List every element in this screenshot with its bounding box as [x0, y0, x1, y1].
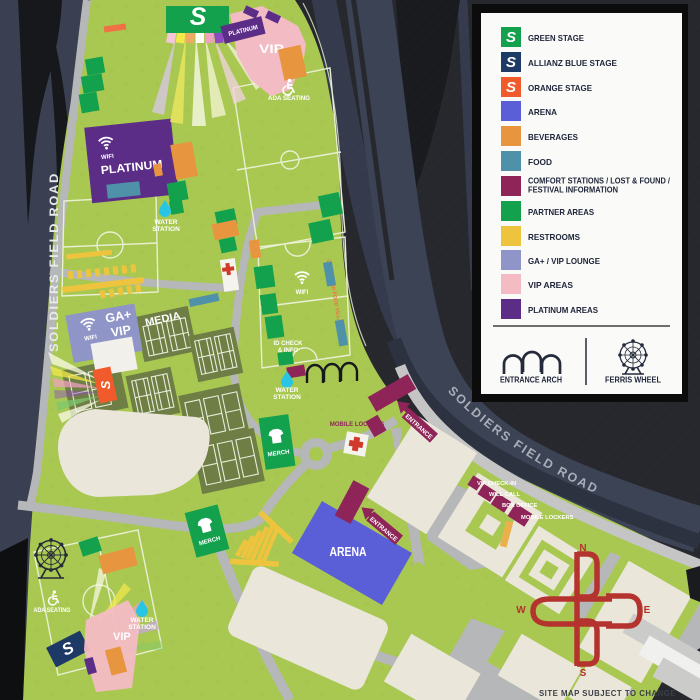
svg-text:FERRIS WHEEL: FERRIS WHEEL: [605, 375, 661, 385]
svg-text:WATER: WATER: [155, 219, 178, 226]
svg-text:WILL CALL: WILL CALL: [489, 492, 521, 498]
svg-text:ADA SEATING: ADA SEATING: [34, 607, 71, 614]
svg-text:GA+ / VIP LOUNGE: GA+ / VIP LOUNGE: [528, 256, 600, 266]
svg-text:VIP AREAS: VIP AREAS: [528, 280, 573, 290]
svg-text:W: W: [516, 605, 526, 616]
svg-text:FOOD: FOOD: [528, 157, 552, 167]
svg-text:STATION: STATION: [152, 226, 180, 233]
svg-text:E: E: [644, 605, 651, 616]
svg-text:S: S: [580, 668, 587, 679]
svg-text:MOBILE LOCKERS: MOBILE LOCKERS: [330, 422, 384, 428]
svg-text:VIP CHECK-IN: VIP CHECK-IN: [477, 481, 516, 487]
svg-text:ADA SEATING: ADA SEATING: [268, 95, 310, 102]
svg-text:GREEN STAGE: GREEN STAGE: [528, 33, 584, 43]
svg-text:STATION: STATION: [128, 624, 156, 631]
svg-text:PARTNER AREAS: PARTNER AREAS: [528, 207, 594, 217]
svg-text:WATER: WATER: [131, 617, 154, 624]
svg-text:VIP: VIP: [113, 631, 131, 643]
svg-text:STATION: STATION: [273, 394, 301, 401]
svg-text:MOBILE LOCKERS: MOBILE LOCKERS: [521, 515, 574, 521]
svg-text:& INFO: & INFO: [278, 348, 299, 354]
svg-text:SOLDIERS FIELD ROAD: SOLDIERS FIELD ROAD: [47, 172, 61, 352]
svg-text:ARENA: ARENA: [528, 107, 557, 117]
svg-text:ID CHECK: ID CHECK: [273, 341, 303, 347]
svg-text:BOX OFFICE: BOX OFFICE: [502, 503, 538, 509]
svg-text:ORANGE STAGE: ORANGE STAGE: [528, 83, 592, 93]
svg-text:N: N: [579, 543, 586, 554]
svg-text:ARENA: ARENA: [330, 544, 367, 559]
svg-text:PLATINUM AREAS: PLATINUM AREAS: [528, 305, 598, 315]
svg-text:WIFI: WIFI: [296, 290, 309, 296]
svg-text:WATER: WATER: [276, 387, 299, 394]
svg-text:FESTIVAL INFORMATION: FESTIVAL INFORMATION: [528, 185, 618, 195]
svg-text:RESTROOMS: RESTROOMS: [528, 232, 580, 242]
svg-text:SITE MAP SUBJECT TO CHANGE: SITE MAP SUBJECT TO CHANGE: [539, 689, 676, 698]
svg-text:ALLIANZ BLUE STAGE: ALLIANZ BLUE STAGE: [528, 58, 617, 68]
svg-text:ENTRANCE ARCH: ENTRANCE ARCH: [500, 375, 562, 385]
svg-text:BEVERAGES: BEVERAGES: [528, 132, 578, 142]
